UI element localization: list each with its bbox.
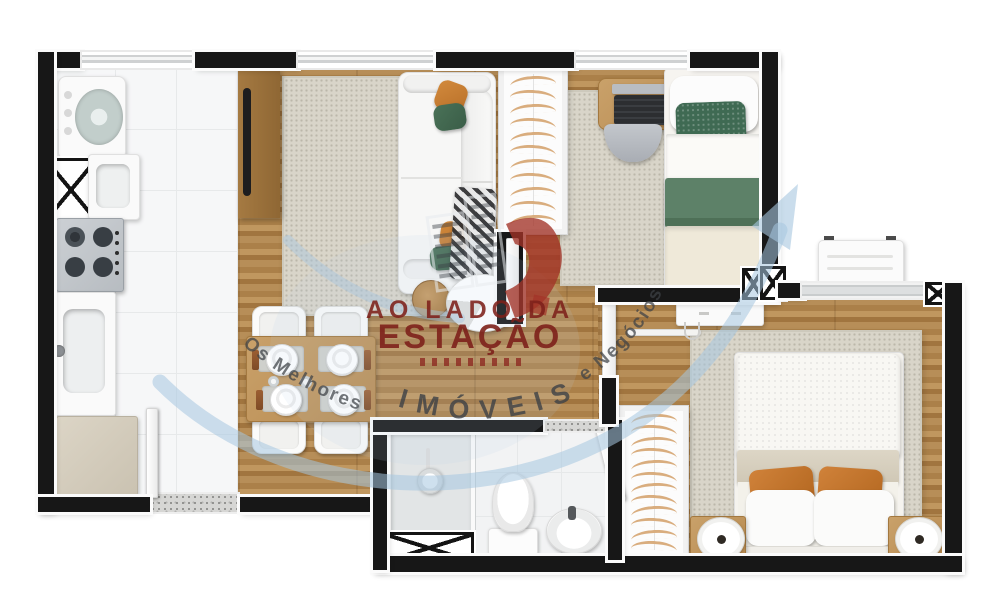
bedroom2-window [802,283,925,298]
closet-hanger [510,103,557,114]
sofa-pillow-green-north [432,102,467,132]
napkin [364,390,371,410]
closet-hanger [510,116,557,127]
closet-hanger [631,482,678,493]
burner [65,227,85,247]
plate [326,344,358,376]
bathroom-threshold [545,421,609,431]
toilet-bowl [492,472,534,532]
napkin [364,350,371,370]
closet-hanger [510,172,557,183]
wall-bathroom-left [373,420,387,570]
wall-dining-bottom [240,497,374,512]
closet-hanger [631,459,678,470]
bedroom2-wardrobe [620,406,688,558]
plate [270,384,302,416]
bedroom1-window [576,52,690,68]
shower-head [417,468,443,494]
entry-door [146,408,158,498]
napkin [256,390,263,410]
drinking-glass [300,376,312,388]
ac-vent [827,255,893,258]
bed2-duvet [736,354,900,456]
wall-bathroom-top [373,420,545,432]
plate [266,344,298,376]
closet-hanger [510,89,557,100]
wall-kitchen-bottom [38,497,150,512]
wall-left [38,52,54,512]
washer-drum [75,89,123,145]
bed1-sheet [666,134,762,182]
closet-hanger [510,144,557,155]
napkin [252,350,259,370]
sofa-back-split [461,181,493,183]
wall-bathroom-right [608,420,622,560]
closet-hanger [510,214,557,225]
kitchen-faucet [53,345,65,357]
toilet-tank [488,528,538,556]
throw-blanket [449,187,497,282]
laundry-basin [96,164,130,208]
closet-hanger [510,158,557,169]
lamp-right [896,518,942,560]
kitchen-sink-counter [54,292,116,416]
closet-hanger [631,424,678,435]
closet-hanger [510,130,557,141]
laptop-keyboard [614,95,668,125]
closet-hanger [631,517,678,528]
sideboard-handles [699,312,709,315]
closet-hanger [631,447,678,458]
wall-hook [684,322,700,340]
closet-hanger [510,186,557,197]
lamp-left [698,518,744,560]
tv [243,88,251,196]
closet-hanger [631,494,678,505]
cooktop [56,218,124,292]
wall-top-2 [195,52,298,68]
washer-knob [64,91,72,99]
entry-mat [150,494,238,512]
closet-hanger [510,75,557,86]
bedroom1-door [506,238,519,320]
bedroom2-door [602,302,616,384]
closet-hanger [631,528,678,539]
sink-faucet [568,506,576,520]
ac-condenser [818,240,904,286]
wall-hall-stub [602,378,616,424]
plate [328,384,360,416]
laptop-screen [612,84,670,94]
washing-machine [58,76,126,160]
closet-hanger [631,412,678,423]
floor-plan: AO LADO DA ESTAÇÃO Os Melhores IMÓVEIS e… [0,0,990,600]
wall-bedroom1-right [762,52,778,302]
kitchen-window [82,52,195,68]
bed1-green-blanket [665,178,763,228]
wall-bedroom2-top [778,283,804,298]
bed2-pillow-white-right [814,490,894,546]
kitchen-sink-basin [63,309,105,393]
wood-stool [412,280,450,318]
bed2-pillow-white-left [746,490,816,546]
wall-top-3 [436,52,576,68]
wall-right [945,283,962,572]
laundry-sink [88,154,140,220]
kitchen-base-cabinet [56,416,138,496]
closet-hanger [510,200,557,211]
bedroom1-wardrobe [499,66,567,234]
cooktop-knobs [115,231,119,235]
closet-hanger [631,436,678,447]
closet-hanger [631,505,678,516]
living-window [298,52,436,68]
closet-hanger [631,540,678,551]
ac-vent [827,267,893,270]
drinking-glass [268,376,279,387]
wall-bottom [373,556,962,572]
closet-hanger [631,470,678,481]
sofa-seat-split [401,177,463,179]
